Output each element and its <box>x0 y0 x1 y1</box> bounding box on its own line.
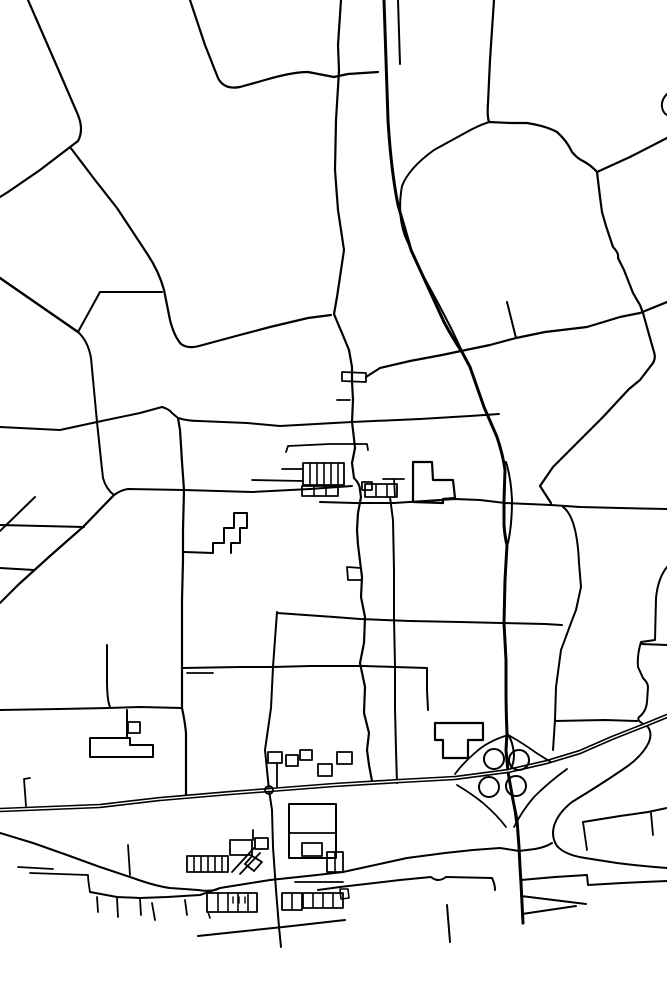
clover-loop-nw <box>484 749 504 769</box>
sw-diagonal <box>0 495 114 603</box>
road-r1-east <box>553 567 667 868</box>
hwy-cluster-1 <box>268 752 282 763</box>
north-stub-399 <box>398 0 400 64</box>
ew-road-503 <box>320 499 667 509</box>
driveway-4 <box>152 903 155 920</box>
big-north-inner <box>302 843 322 856</box>
hwy-cluster-3 <box>300 750 312 760</box>
spur-302 <box>507 302 516 338</box>
j2-ne-road <box>597 138 667 172</box>
road-x277 <box>265 612 281 947</box>
building-stepped-north <box>184 513 247 553</box>
street-jog-rect <box>342 372 366 382</box>
top-arc-road <box>190 0 378 88</box>
h3a-road <box>521 896 586 904</box>
cluster-diamond <box>245 856 262 871</box>
below-row-comb <box>233 897 245 903</box>
road-v2 <box>553 507 581 750</box>
hwy-cluster-2 <box>286 755 298 766</box>
branch-645 <box>641 644 667 645</box>
segment-867 <box>18 867 53 869</box>
h1-link <box>583 822 587 850</box>
motorway-ew <box>0 716 667 810</box>
h1-tick <box>651 813 653 835</box>
building-below-row <box>207 893 257 912</box>
j2-west-curve <box>400 122 489 349</box>
map-svg <box>0 0 667 1000</box>
right-edge-arc <box>662 94 667 115</box>
building-large-east <box>413 462 455 503</box>
link-721 <box>555 720 637 721</box>
h2-road <box>521 875 667 885</box>
building-small-722 <box>128 722 140 733</box>
ew-road-613 <box>277 613 334 617</box>
building-town-south <box>90 710 153 757</box>
road-x97 <box>78 332 114 495</box>
field-boundary-nw <box>0 0 81 197</box>
driveway-1 <box>97 897 98 912</box>
lower-rect <box>340 889 349 899</box>
hwy-cluster-4 <box>318 764 332 776</box>
j2-east-curve <box>489 122 597 172</box>
north-approach <box>488 0 494 122</box>
h3b-road <box>522 906 576 914</box>
street-x394 <box>390 497 397 783</box>
hook-24 <box>24 778 30 806</box>
main-ns-road <box>178 418 186 795</box>
building-big-north <box>289 804 336 858</box>
town-main-street <box>334 0 372 781</box>
motorway-ew-core <box>0 716 667 810</box>
below-row-hook <box>208 912 210 918</box>
tick-128 <box>128 845 130 875</box>
road-nw-to-town <box>70 147 331 347</box>
village-lower-road <box>318 877 495 890</box>
j2-south-road <box>540 172 655 503</box>
t-lane <box>383 479 404 497</box>
ramp-ne <box>510 736 551 762</box>
lone-stub <box>447 905 450 942</box>
loop-rect-567 <box>347 567 362 580</box>
west-curve <box>0 833 218 891</box>
ew-road-490 <box>114 486 352 495</box>
ew-road-666 <box>182 666 428 710</box>
parallel-480 <box>252 480 303 481</box>
field-b <box>0 525 84 527</box>
stub-x107 <box>107 645 110 707</box>
peak-link <box>78 292 100 332</box>
cluster-diag-2 <box>240 853 260 874</box>
ew-road-617 <box>334 617 562 625</box>
cluster-rect-2 <box>255 838 268 849</box>
clover-loop-sw <box>479 777 499 797</box>
field-c <box>0 568 34 570</box>
driveway-2 <box>117 898 118 917</box>
ene-long-road <box>366 302 667 377</box>
map-poster <box>0 0 667 1000</box>
driveway-3 <box>140 899 141 915</box>
ew-road-420 <box>0 407 499 430</box>
driveway-5 <box>185 900 187 915</box>
street-west-tail <box>30 873 90 892</box>
hwy-cluster-5 <box>337 752 352 764</box>
south-diagonal <box>198 920 345 936</box>
h1-road <box>583 808 667 822</box>
west-diagonal <box>0 278 78 332</box>
ew-road-708 <box>0 707 182 710</box>
